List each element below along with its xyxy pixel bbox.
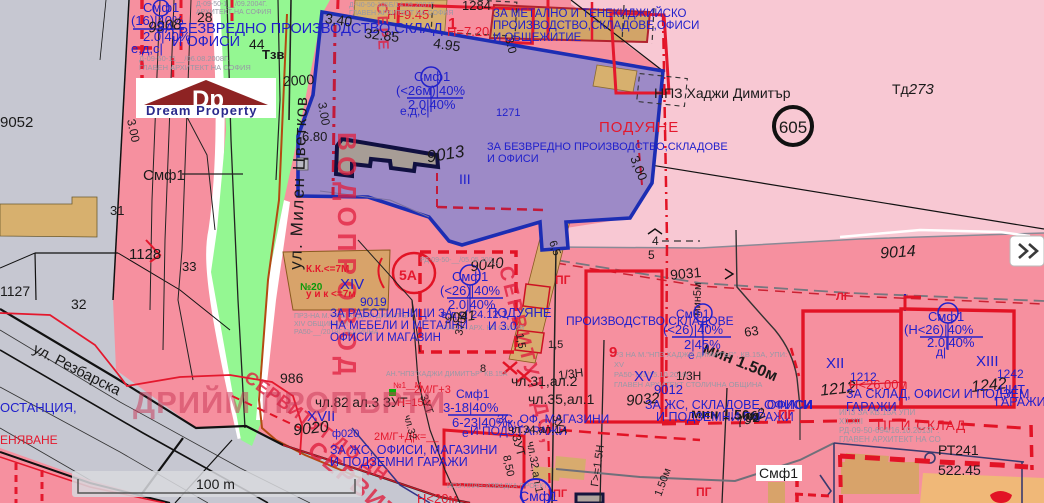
- svg-text:Д-Ч0-50-105Б/14.09.2007Г.: Д-Ч0-50-105Б/14.09.2007Г.: [349, 2, 435, 9]
- svg-text:ОСТАНЦИЯ,: ОСТАНЦИЯ,: [0, 400, 77, 415]
- svg-text:XII,XIII: XII,XIII: [839, 417, 863, 426]
- svg-text:9031: 9031: [669, 264, 702, 283]
- svg-text:ПГ: ПГ: [555, 273, 571, 287]
- svg-text:1/3Н: 1/3Н: [676, 369, 701, 383]
- svg-text:е,д,с|: е,д,с|: [400, 104, 429, 118]
- svg-text:ГЛАВЕН АРХИТЕКТ НА СОФИЯ: ГЛАВЕН АРХИТЕКТ НА СОФИЯ: [349, 10, 453, 17]
- svg-text:Н=7.20: Н=7.20: [447, 24, 489, 39]
- svg-text:д|: д|: [936, 345, 946, 359]
- svg-text:1127: 1127: [0, 283, 30, 299]
- svg-text:5: 5: [648, 248, 655, 262]
- svg-text:Смф1: Смф1: [519, 488, 558, 503]
- svg-text:33: 33: [182, 259, 196, 274]
- svg-text:9: 9: [609, 344, 617, 361]
- svg-text:XV: XV: [614, 360, 624, 369]
- svg-text:И ОФИСИ: И ОФИСИ: [172, 34, 240, 50]
- svg-text:ПРОИЗВОДСТВО,СКЛАДОВЕ: ПРОИЗВОДСТВО,СКЛАДОВЕ: [566, 314, 734, 328]
- svg-text:1,5: 1,5: [548, 339, 563, 351]
- svg-text:XV: XV: [634, 368, 654, 385]
- svg-text:9052: 9052: [0, 114, 33, 131]
- svg-text:Смф1: Смф1: [456, 387, 490, 401]
- svg-text:И ПОДЗЕМНИ ГАРАЖИ: И ПОДЗЕМНИ ГАРАЖИ: [656, 410, 794, 424]
- svg-text:Dream Property: Dream Property: [146, 103, 258, 118]
- svg-text:ГЛАВЕН АРХИТЕКТ НА СО: ГЛАВЕН АРХИТЕКТ НА СО: [839, 435, 941, 444]
- svg-text:РД-09-50-694/16.10.2013Г .: РД-09-50-694/16.10.2013Г .: [839, 426, 939, 435]
- svg-text:31: 31: [110, 203, 124, 218]
- svg-text:ГАРАЖИ: ГАРАЖИ: [995, 395, 1044, 409]
- svg-text:XIII: XIII: [976, 353, 999, 370]
- svg-text:ПОДУЯНЕ: ПОДУЯНЕ: [488, 305, 552, 320]
- svg-text:Смф1: Смф1: [759, 465, 798, 481]
- svg-text:Тзв: Тзв: [262, 47, 284, 62]
- svg-text:2000: 2000: [282, 71, 314, 89]
- svg-text:6.80: 6.80: [302, 129, 327, 144]
- svg-text:III: III: [459, 171, 471, 187]
- svg-text:28: 28: [197, 9, 213, 25]
- svg-text:605: 605: [779, 118, 807, 137]
- svg-text:2.0|40%: 2.0|40%: [927, 335, 975, 350]
- svg-text:1271: 1271: [496, 107, 520, 119]
- svg-text:ГЛАВЕН АРХИТЕКТ НА СОФИЯ: ГЛАВЕН АРХИТЕКТ НА СОФИЯ: [139, 63, 251, 72]
- svg-text:ПРОИЗВОДСТВО,СКЛАДОВЕ,ОФИСИ: ПРОИЗВОДСТВО,СКЛАДОВЕ,ОФИСИ: [493, 20, 699, 32]
- svg-text:63: 63: [743, 323, 759, 340]
- svg-text:И ОФИСИ: И ОФИСИ: [487, 153, 539, 165]
- svg-text:чл.34,ал.1: чл.34,ал.1: [508, 424, 560, 436]
- svg-text:1284: 1284: [462, 0, 491, 13]
- svg-text:Тд273: Тд273: [892, 81, 934, 98]
- svg-text:XII: XII: [826, 355, 844, 372]
- svg-text:ПГ: ПГ: [696, 485, 712, 499]
- svg-text:ф020: ф020: [332, 428, 359, 440]
- svg-text:Д-09-50-1__/09.2004Г.: Д-09-50-1__/09.2004Г.: [196, 1, 267, 8]
- svg-text:3-18|40%: 3-18|40%: [443, 400, 499, 415]
- svg-text:ЗА БЕЗВРЕДНО ПРОИЗВОДСТВО,СКЛА: ЗА БЕЗВРЕДНО ПРОИЗВОДСТВО,СКЛАДОВЕ: [487, 141, 728, 153]
- svg-text:ЗА МЕТАЛНО И ТЕНЕКИДЖИЙСКО: ЗА МЕТАЛНО И ТЕНЕКИДЖИЙСКО: [493, 7, 687, 20]
- svg-text:ЗА РАБОТИЛНИЦИ ЗА: ЗА РАБОТИЛНИЦИ ЗА: [330, 308, 453, 320]
- svg-text:ДРИЙМ ПРОПЪРТИ: ДРИЙМ ПРОПЪРТИ: [133, 384, 446, 420]
- svg-text:Смф1: Смф1: [143, 167, 185, 184]
- svg-text:522.45: 522.45: [938, 462, 981, 478]
- svg-text:ЕНЯВАНЕ: ЕНЯВАНЕ: [0, 433, 58, 447]
- svg-text:И ОБЩЕЖИТИЕ: И ОБЩЕЖИТИЕ: [493, 32, 582, 44]
- svg-text:5А: 5А: [399, 267, 417, 283]
- svg-text:4: 4: [652, 234, 659, 248]
- svg-text:НА МЕБЕЛИ И МЕТАЛНИ: НА МЕБЕЛИ И МЕТАЛНИ: [330, 320, 468, 332]
- svg-text:9019: 9019: [360, 295, 387, 309]
- svg-text:АН."НПЗ"ХАДЖИ ДИМИТЪР" КВ.15А: АН."НПЗ"ХАДЖИ ДИМИТЪР" КВ.15А: [386, 371, 508, 378]
- svg-text:чл.31,ал.2: чл.31,ал.2: [511, 373, 578, 389]
- svg-text:32: 32: [71, 296, 87, 312]
- svg-text:№20: №20: [300, 282, 323, 293]
- svg-text:е: е: [462, 426, 469, 440]
- svg-text:9014: 9014: [880, 243, 917, 262]
- svg-text:986: 986: [280, 370, 304, 386]
- svg-text:ПОДУЯНЕ: ПОДУЯНЕ: [599, 119, 679, 136]
- svg-text:ЛГ: ЛГ: [836, 291, 851, 303]
- svg-text:Смф1: Смф1: [414, 69, 450, 84]
- svg-text:ОФИСИ И МАГАЗИН: ОФИСИ И МАГАЗИН: [330, 332, 441, 344]
- svg-text:РД-09-50-__/05.05.200__: РД-09-50-__/05.05.200__: [420, 257, 500, 264]
- svg-text:1128: 1128: [129, 246, 161, 263]
- svg-text:Н<20м: Н<20м: [417, 491, 457, 503]
- svg-text:ИПЗ ЗА КВ.15А УПИ: ИПЗ ЗА КВ.15А УПИ: [839, 408, 915, 417]
- svg-text:Д-09-50-11__/06.08.2008Г.: Д-09-50-11__/06.08.2008Г.: [139, 54, 229, 63]
- svg-text:РЗ НА М."НПЗ ХАДЖИ ДИМИТЪР", К: РЗ НА М."НПЗ ХАДЖИ ДИМИТЪР", КВ.15А, УПИ…: [614, 350, 787, 359]
- svg-text:И 3.0: И 3.0: [488, 319, 517, 333]
- svg-text:К.К.<=7М: К.К.<=7М: [306, 264, 349, 275]
- svg-text:чл.35,ал.1: чл.35,ал.1: [528, 391, 595, 407]
- svg-text:ПГ: ПГ: [778, 407, 795, 422]
- svg-text:XIV: XIV: [340, 276, 364, 293]
- svg-text:И ПОДЗЕМНИ ГАРАЖИ: И ПОДЗЕМНИ ГАРАЖИ: [330, 455, 468, 469]
- svg-text:92: 92: [745, 410, 759, 425]
- svg-text:100 m: 100 m: [196, 476, 235, 492]
- svg-text:НПЗ Хаджи Димитър: НПЗ Хаджи Димитър: [654, 85, 791, 101]
- svg-text:РТ241: РТ241: [938, 442, 979, 458]
